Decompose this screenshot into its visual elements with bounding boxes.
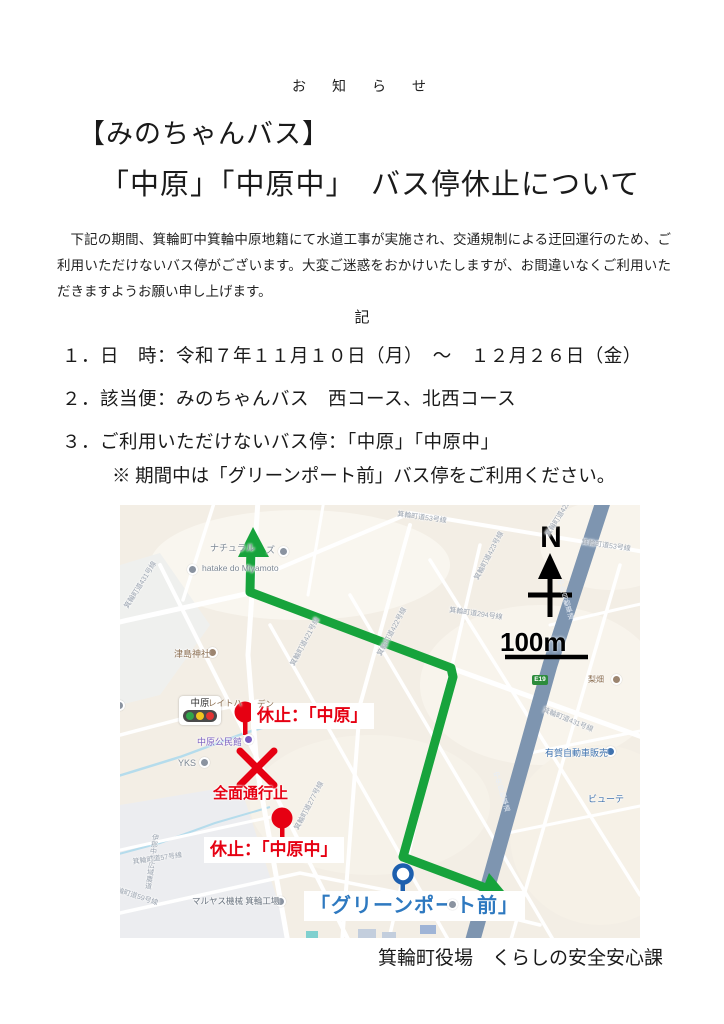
notice-item-routes: ２．該当便：みのちゃんバス 西コース、北西コース xyxy=(62,385,682,411)
poi-label: マルヤス機械 箕輪工場 xyxy=(192,895,279,907)
poi-label: 有賀自動車販売 xyxy=(545,746,608,759)
notice-title-bus-name: 【みのちゃんバス】 xyxy=(78,112,330,151)
poi-label: ビューテ xyxy=(588,792,624,805)
notice-page: お 知 ら せ 【みのちゃんバス】 「中原」「中原中」 バス停休止について 下記… xyxy=(0,0,724,1024)
record-mark: 記 xyxy=(0,306,724,327)
poi-label: 梨畑 xyxy=(588,674,604,685)
poi-dot-icon xyxy=(611,674,622,685)
yellow-lamp-icon xyxy=(196,712,204,720)
notice-note: ※ 期間中は「グリーンポート前」バス停をご利用ください。 xyxy=(112,462,615,488)
poi-label: YKS xyxy=(178,758,196,768)
expressway-badge: E19 xyxy=(532,675,548,685)
poi-label: ズ xyxy=(266,543,275,556)
poi-dot-icon xyxy=(278,546,289,557)
route-map: 中原 N 100m E19 休止：「中原」 休止：「中原中」 全面通行止 「グリ… xyxy=(120,505,640,938)
poi-label: hatake do Miyamoto xyxy=(202,563,279,573)
green-lamp-icon xyxy=(186,712,194,720)
poi-dot-icon xyxy=(199,757,210,768)
greenport-stop-label: 「グリーンポート前」 xyxy=(304,891,525,921)
building-blocks xyxy=(306,925,436,938)
poi-label: デン xyxy=(257,698,274,710)
notice-title-main: 「中原」「中原中」 バス停休止について xyxy=(100,161,640,203)
poi-dot-icon xyxy=(187,564,198,575)
poi-label: ナチュラル xyxy=(210,541,255,554)
traffic-light-icon xyxy=(183,710,217,722)
poi-label: レイトハ xyxy=(208,697,242,709)
suspended-stop-nakahara-naka-label: 休止：「中原中」 xyxy=(204,837,344,863)
road-closure-label: 全面通行止 xyxy=(213,782,288,803)
community-center-poi-icon xyxy=(243,734,254,745)
poi-dot-icon xyxy=(447,899,458,910)
poi-label: 中原公民館 xyxy=(197,735,242,748)
notice-item-stops: ３．ご利用いただけないバス停：「中原」「中原中」 xyxy=(62,428,682,454)
poi-label: 津島神社 xyxy=(174,647,210,660)
notice-header: お 知 ら せ xyxy=(0,76,724,96)
scale-label: 100m xyxy=(500,627,567,658)
notice-item-date: １．日 時：令和７年１１月１０日（月） ～ １２月２６日（金） xyxy=(62,342,682,368)
notice-body: 下記の期間、箕輪町中箕輪中原地籍にて水道工事が実施され、交通規制による迂回運行の… xyxy=(57,227,671,305)
red-lamp-icon xyxy=(206,712,214,720)
notice-footer: 箕輪町役場 くらしの安全安心課 xyxy=(0,943,663,970)
